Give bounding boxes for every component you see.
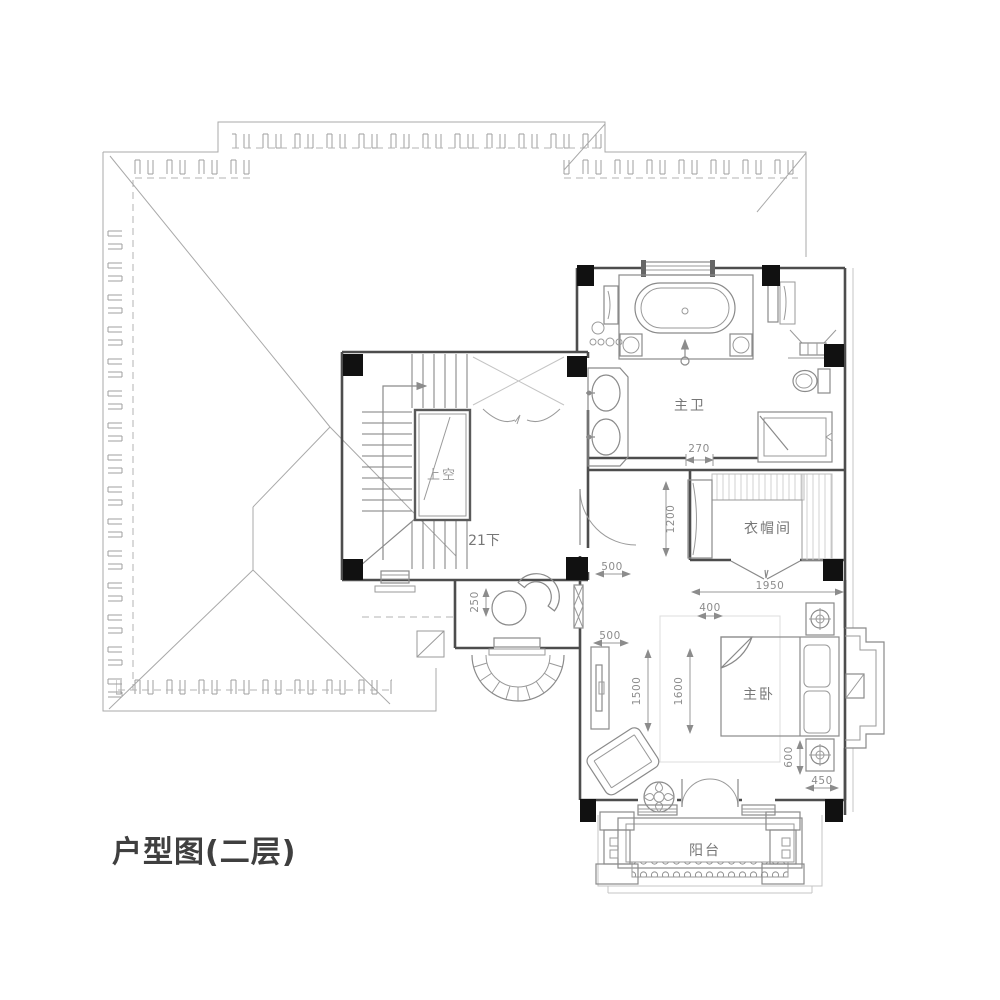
dimension-nook-depth: 250 [469,589,486,616]
floorplan-page: 270 1200 1950 500 250 500 400 1500 [0,0,1000,1000]
label-master-bath: 主卫 [674,398,706,414]
label-void: 上空 [427,468,457,483]
floor-flower-symbol [644,782,674,812]
hall-double-door [483,409,560,424]
bath-window-right [768,282,795,324]
dim-1500: 1500 [631,677,643,706]
dim-500-lower: 500 [599,630,621,642]
dimension-corner-offset: 450 [806,775,838,788]
dim-400: 400 [699,602,721,614]
stairs-lower-flight [410,521,472,569]
round-side-table [492,591,526,625]
dim-250: 250 [469,591,481,613]
nook-window-bottom [489,638,545,655]
dim-270: 270 [688,443,710,455]
tv-cabinet [591,647,609,729]
dimension-bed-side: 600 [783,741,800,774]
roof-chimney [417,631,444,657]
balcony-double-door [682,779,738,807]
void-opening [415,410,470,520]
dimension-corridor-window-lower: 500 [594,630,628,643]
floorplan-drawing: 270 1200 1950 500 250 500 400 1500 [0,0,1000,1000]
dimension-bed-gap: 400 [698,602,722,616]
dim-450: 450 [811,775,833,787]
dimension-cloak-cabinet: 1200 [665,482,677,556]
dim-500-upper: 500 [601,561,623,573]
dimension-corridor-window-upper: 500 [596,561,630,574]
wardrobe-cabinet [688,480,712,558]
landing-cross [473,357,564,405]
dimension-bed-width: 1600 [673,649,690,733]
label-master-bedroom: 主卧 [743,687,775,703]
dim-1600: 1600 [673,677,685,706]
bay-small-window [846,674,864,698]
eave-ticks-left [106,228,132,698]
room-labels: 上空 21下 主卫 衣帽间 主卧 阳台 [427,398,792,859]
shower-enclosure [758,412,832,462]
dim-1200: 1200 [665,505,677,534]
stair-south-window [375,571,415,592]
page-title: 户型图(二层) [112,835,296,870]
master-bedroom [580,580,845,815]
stairs-left-flight [362,410,412,520]
dim-600: 600 [783,746,795,768]
dimension-cloak-width: 1950 [692,580,843,592]
label-cloakroom: 衣帽间 [744,521,792,537]
cloak-double-door [731,561,800,579]
dimension-bath-opening: 270 [686,443,713,466]
bedside-speaker-top [806,603,834,635]
vanity-double-sink [586,368,628,466]
bath-cabinet [590,286,622,346]
label-stairs-down: 21下 [468,533,500,549]
bedside-speaker-bottom [806,739,834,771]
nook-window-right [574,585,583,628]
cloak-shelf-right [802,474,832,560]
bathtub [619,275,753,359]
shower-head-symbol [681,340,689,365]
stair-block [342,352,588,580]
eave-ticks-bottom [116,676,392,702]
dimension-tv-wall: 1500 [631,650,648,731]
dim-1950: 1950 [756,580,785,592]
chaise-lounge [584,725,661,797]
bedroom-window-right [742,805,775,815]
cloak-shelf-top [712,474,804,500]
stairs-upper-flight [410,354,472,408]
toilet [793,369,830,393]
semicircular-bay [472,655,564,701]
right-side-bay [845,628,884,748]
label-balcony: 阳台 [689,843,721,859]
